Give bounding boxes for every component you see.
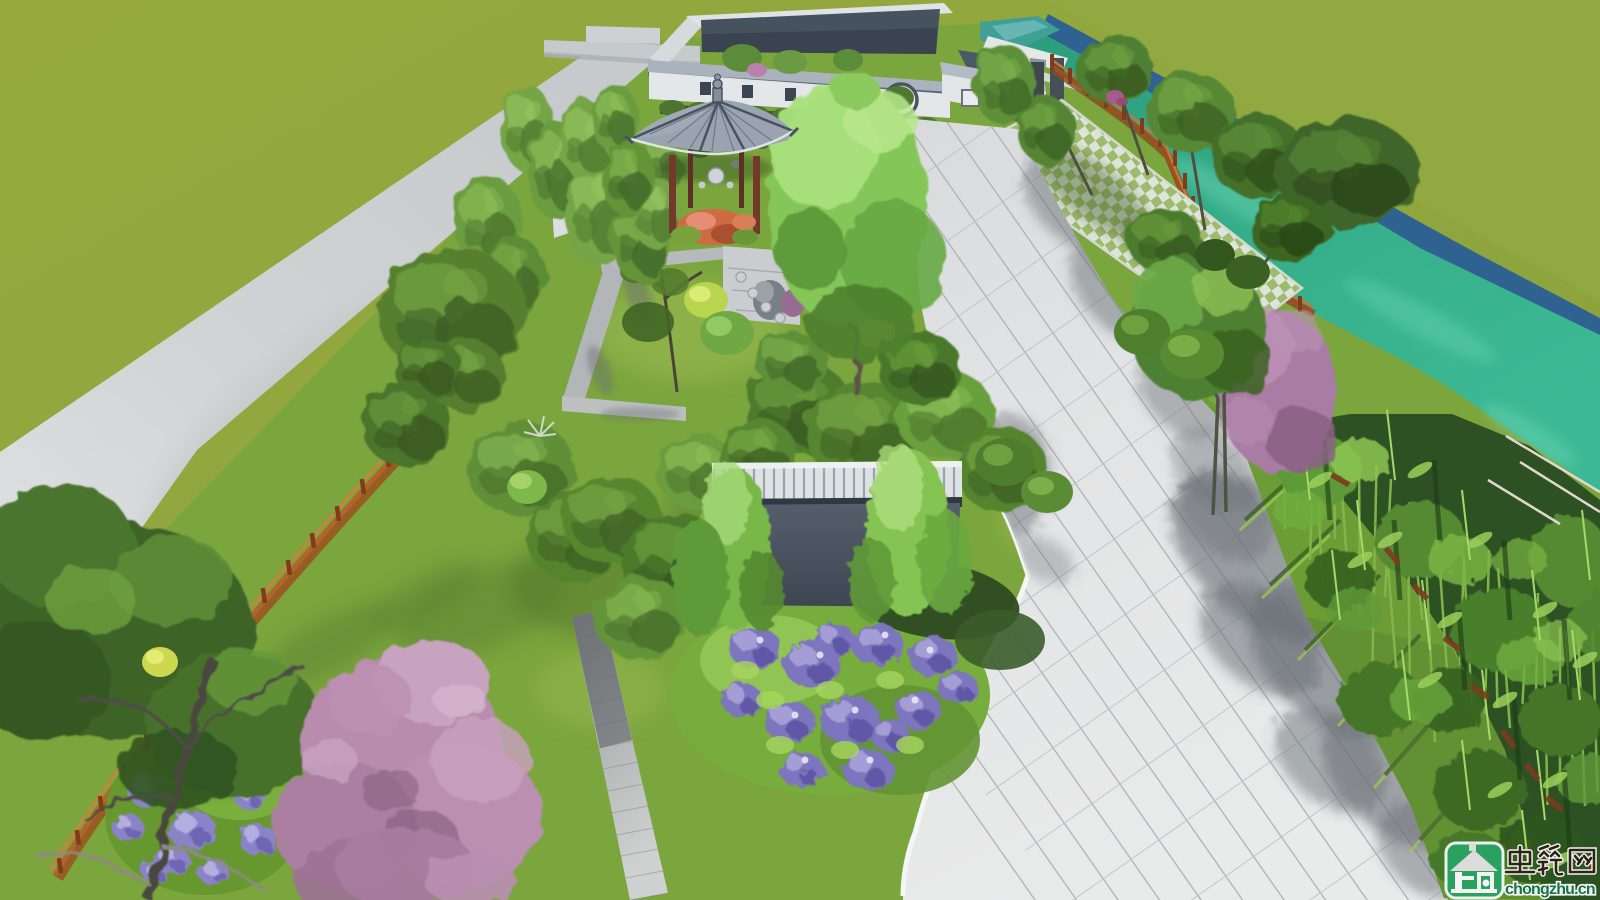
svg-text:chongzhu.cn: chongzhu.cn	[1505, 881, 1595, 898]
